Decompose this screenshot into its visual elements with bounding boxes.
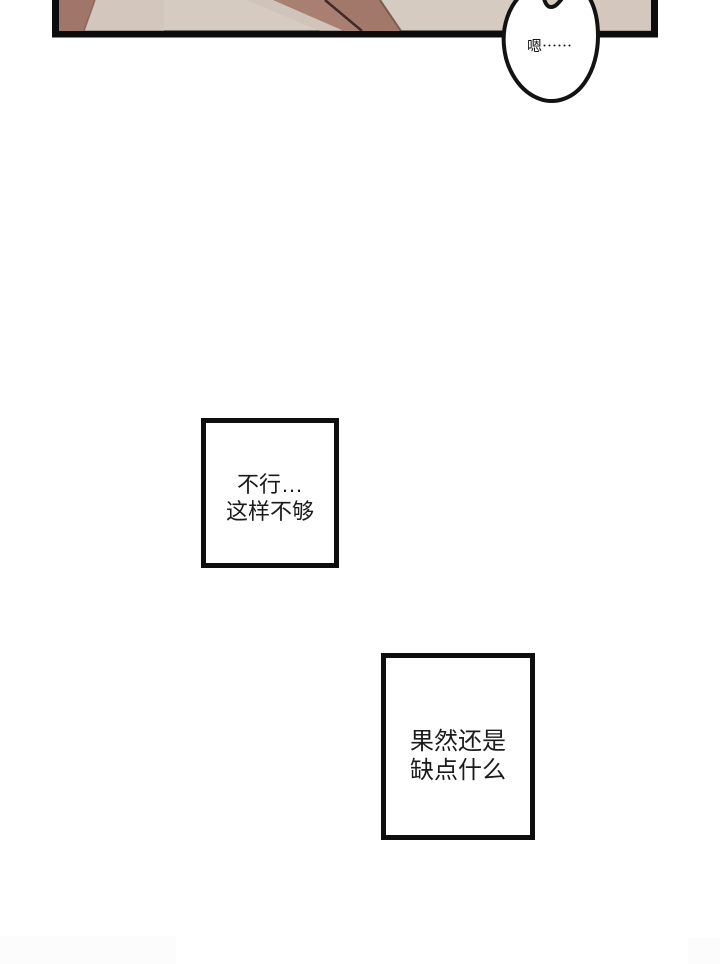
faint-panel-remnant-left: [0, 936, 176, 964]
dialogue-box-2-line-1: 果然还是: [410, 727, 506, 756]
faint-panel-remnant-right: [688, 938, 720, 964]
dialogue-box-2: 果然还是 缺点什么: [381, 653, 535, 840]
comic-page: 嗯⋯⋯ 不行… 这样不够 果然还是 缺点什么: [0, 0, 720, 964]
speech-bubble-text: 嗯⋯⋯: [527, 38, 597, 56]
panel-shading-right: [600, 0, 651, 31]
dialogue-box-1-line-1: 不行…: [237, 471, 303, 498]
top-panel-artwork: [0, 0, 720, 112]
dialogue-box-2-line-2: 缺点什么: [410, 756, 506, 785]
dialogue-box-1-line-2: 这样不够: [226, 498, 314, 525]
dialogue-box-1: 不行… 这样不够: [201, 418, 339, 568]
